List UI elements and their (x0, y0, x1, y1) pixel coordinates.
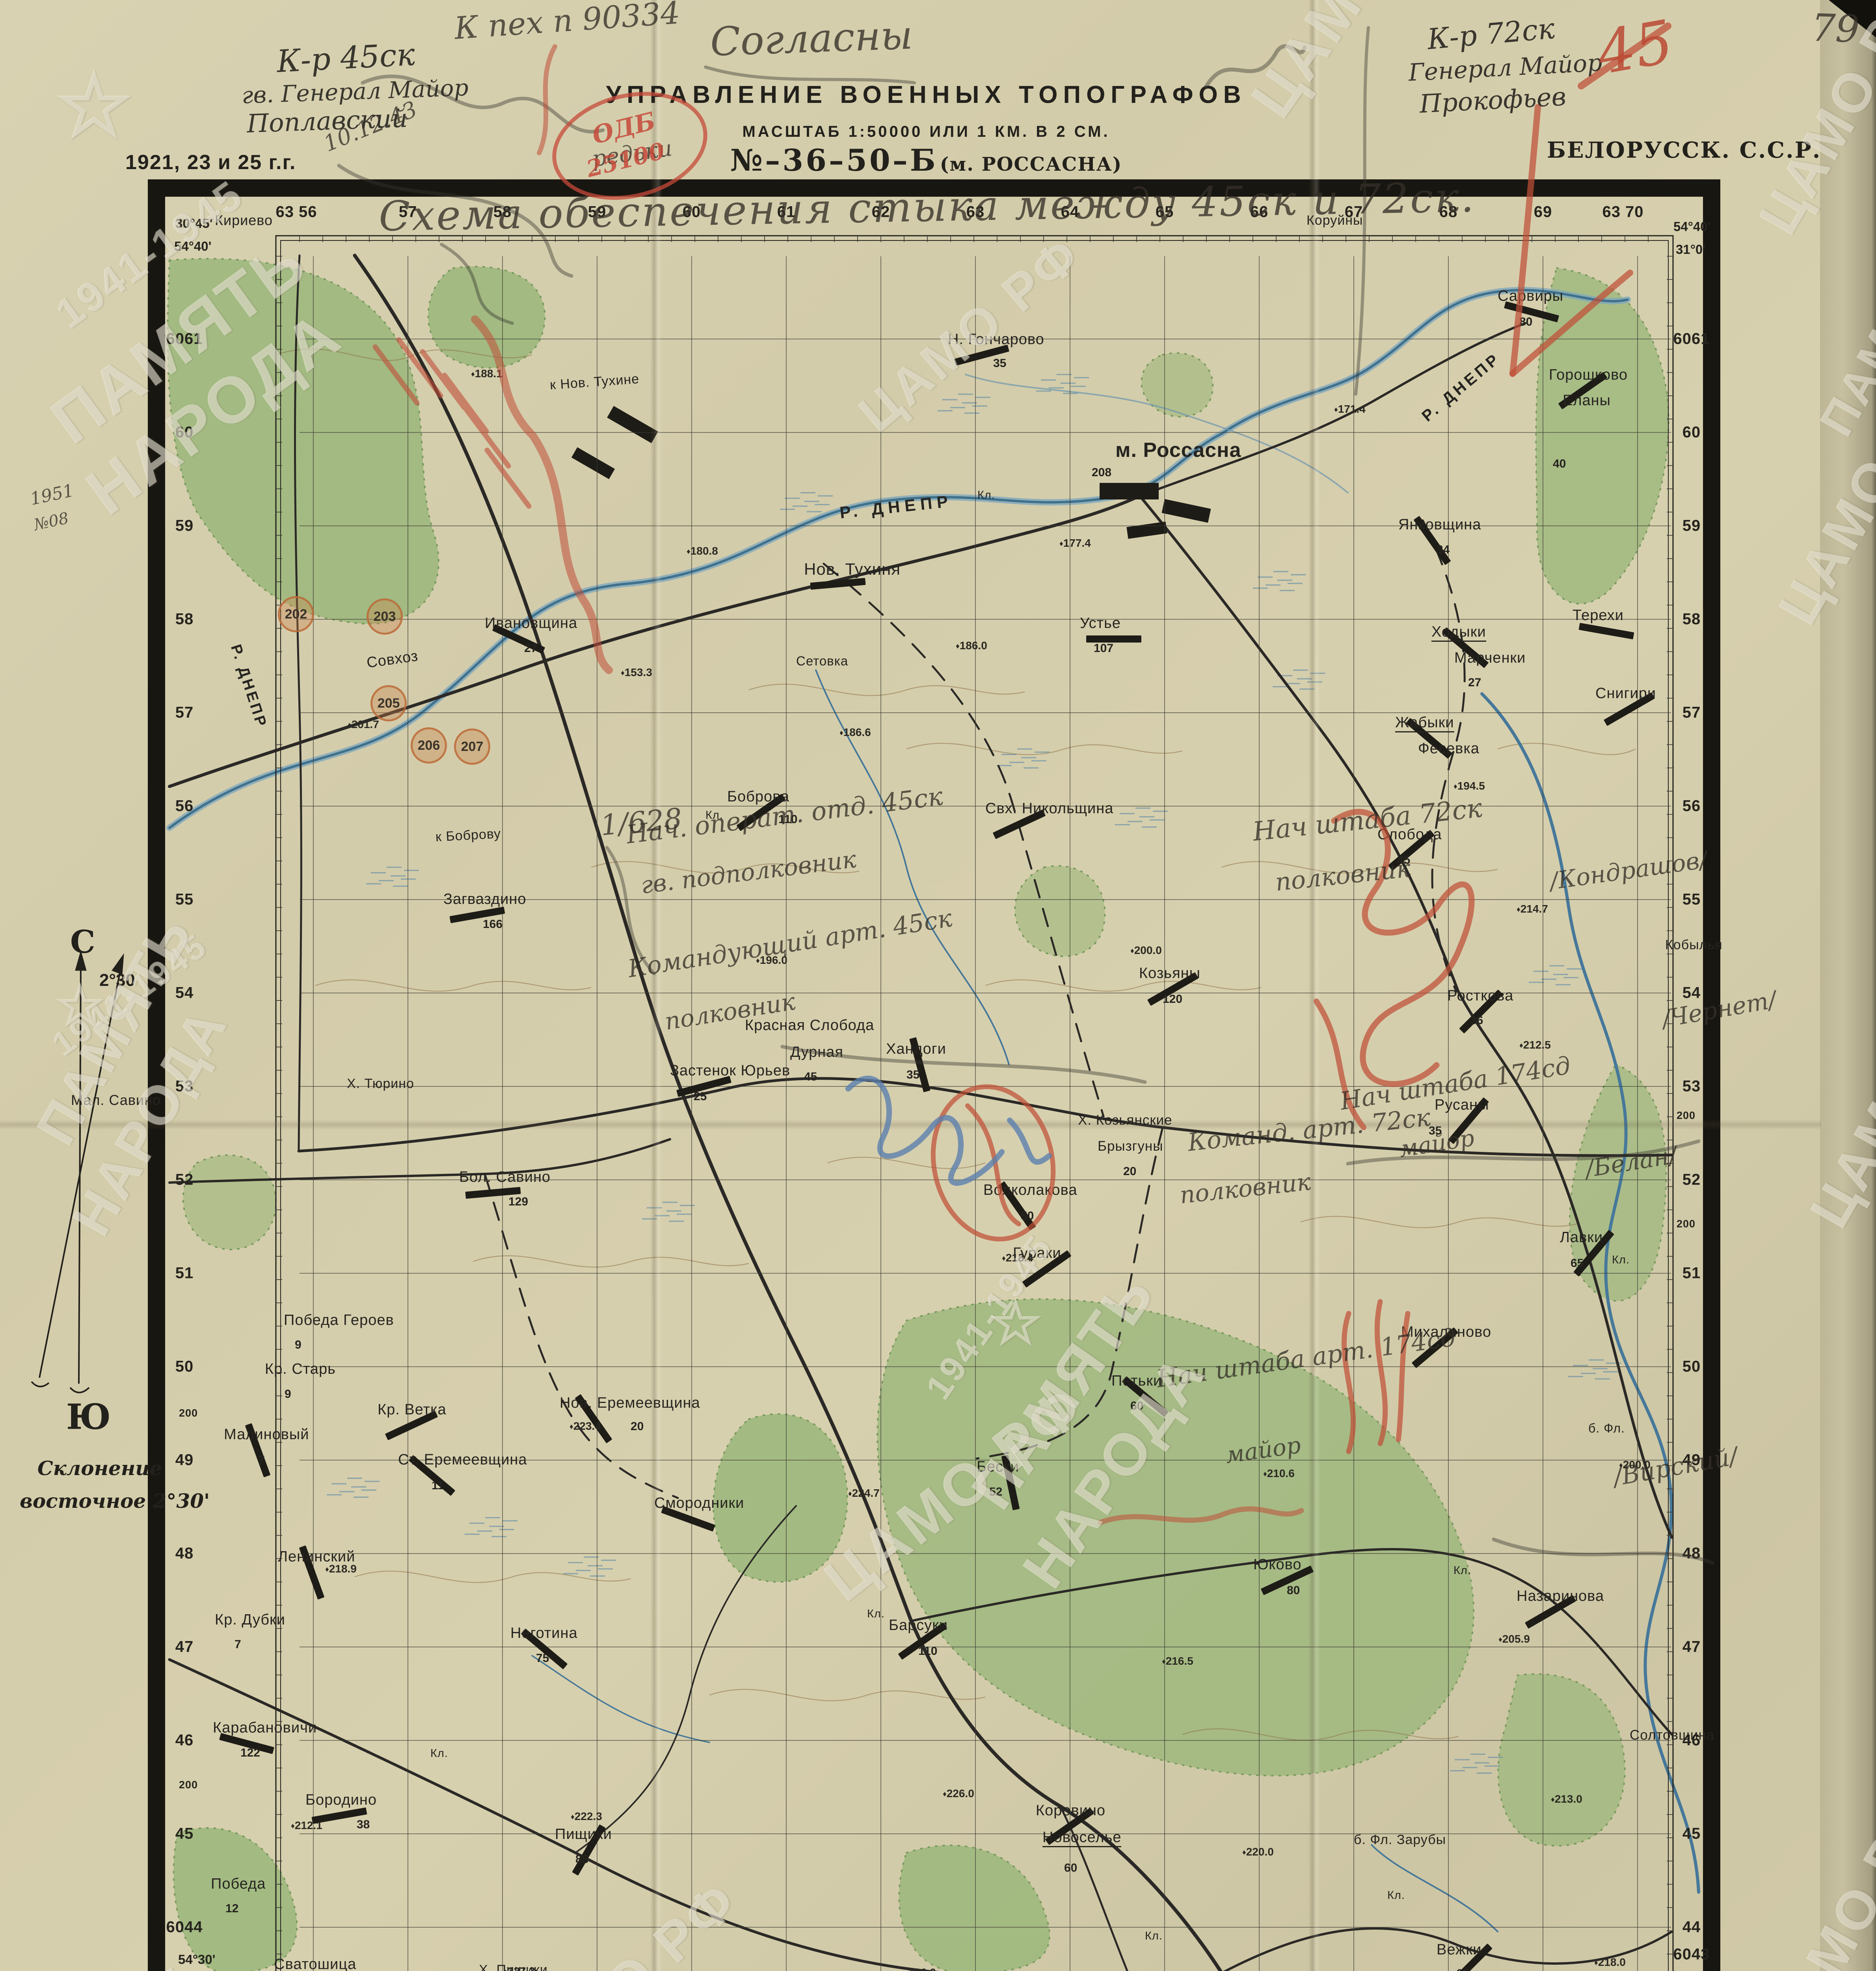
annotation-strokes (0, 0, 1876, 1971)
handwritten-note: 45 (1592, 7, 1678, 88)
handwritten-note: 79 (1811, 6, 1860, 51)
handwritten-note: К-р 45ск (276, 37, 416, 80)
handwritten-note: Согласны (709, 12, 914, 65)
